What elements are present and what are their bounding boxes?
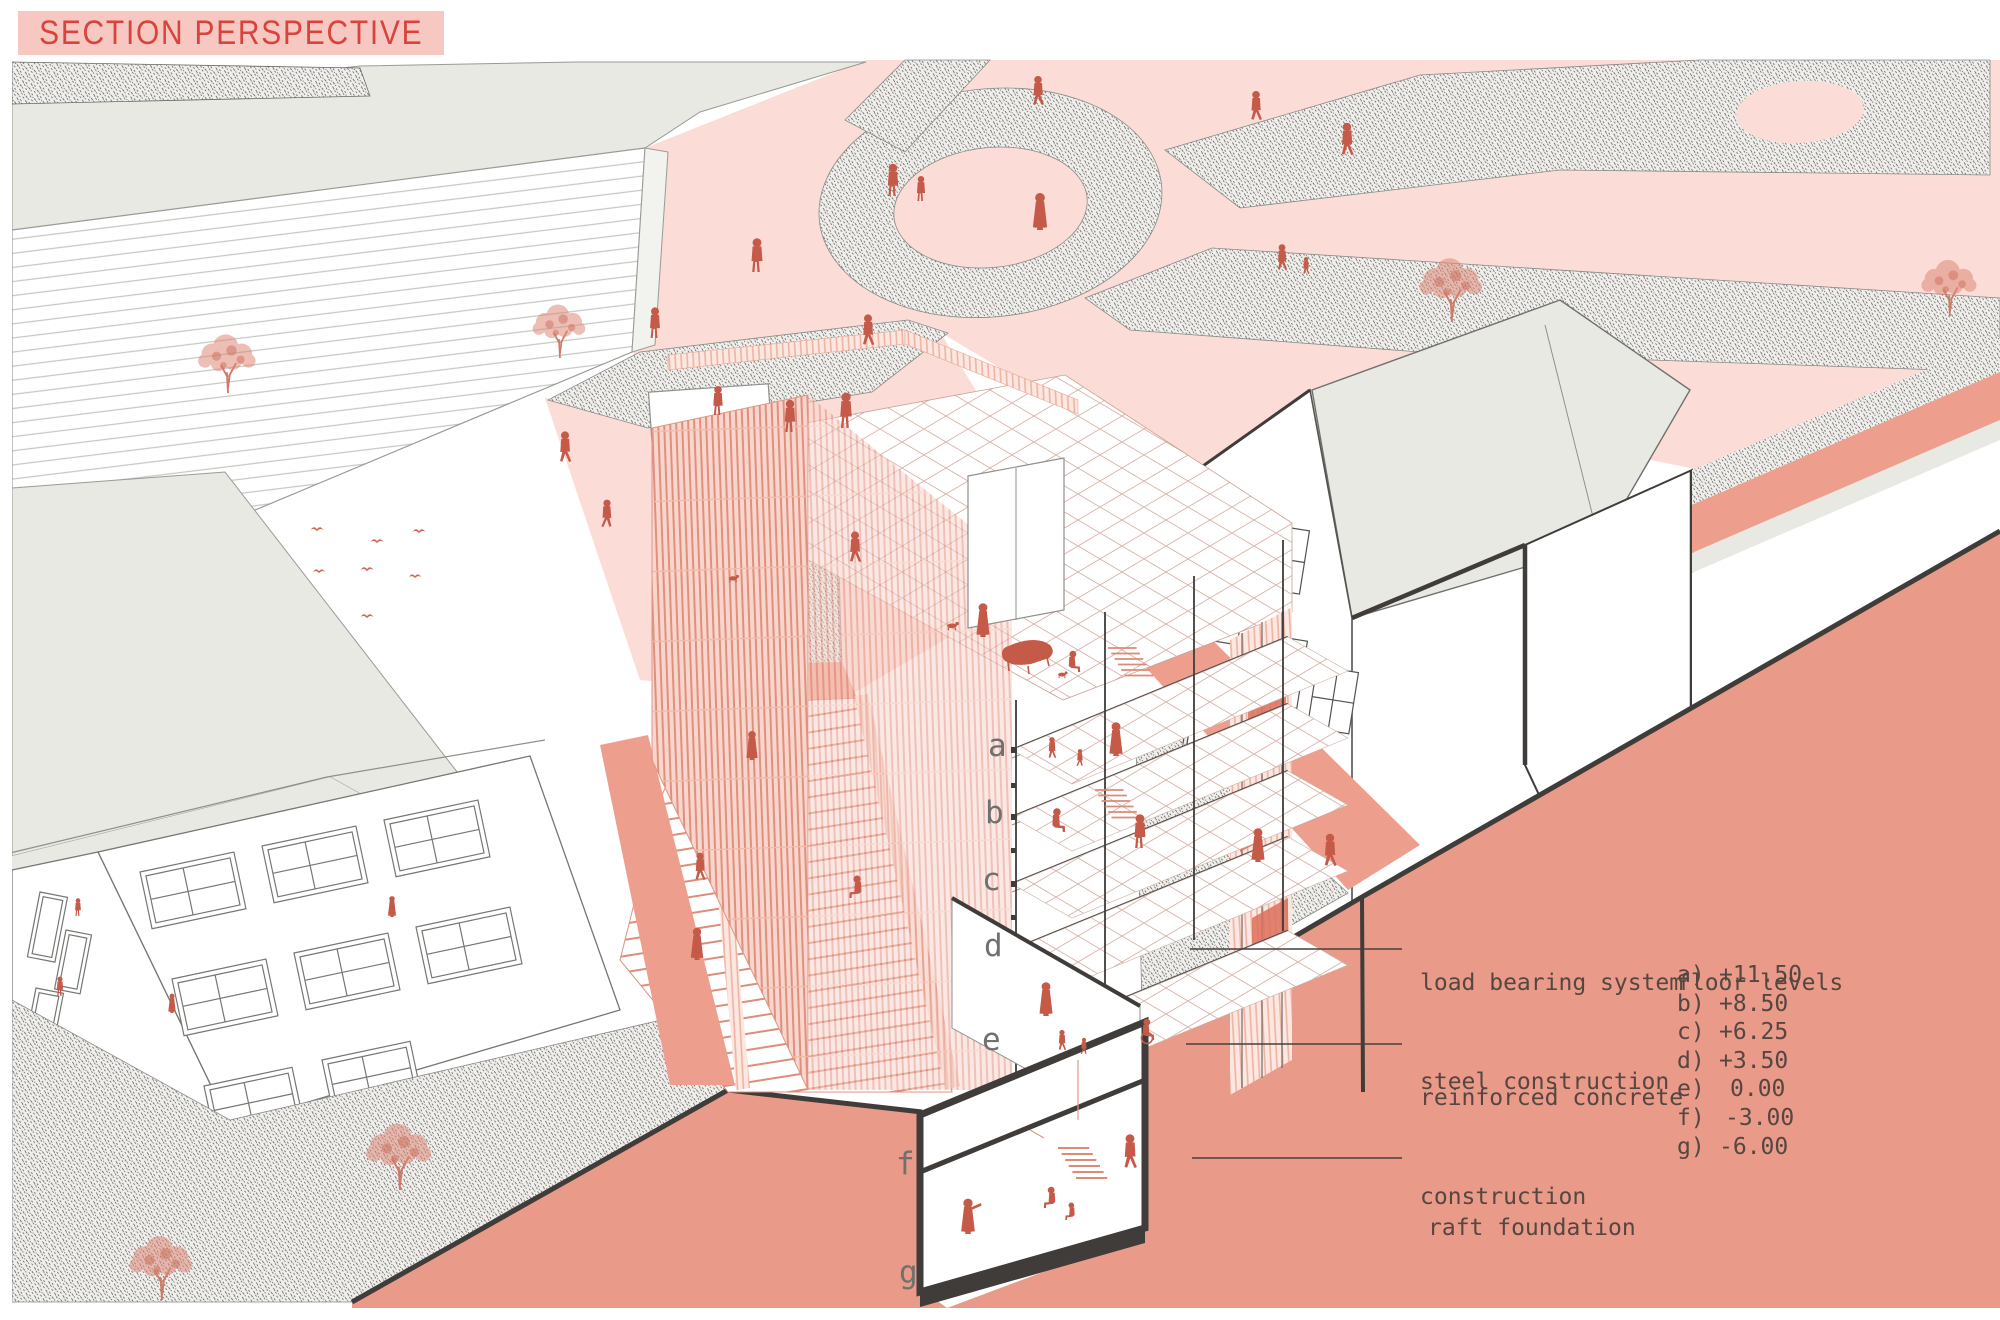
floor-level-row: g)-6.00	[1677, 1133, 1802, 1162]
label-raft: raft foundation	[1428, 1146, 1636, 1278]
section-letter-b: b	[985, 798, 1004, 829]
floor-level-row: b)+8.50	[1677, 990, 1802, 1019]
floor-level-row: f)-3.00	[1677, 1104, 1802, 1133]
section-letter-d: d	[984, 931, 1003, 962]
floor-level-row: c)+6.25	[1677, 1018, 1802, 1047]
floor-level-row: e)0.00	[1677, 1075, 1802, 1104]
floor-levels-list: a)+11.50 b)+8.50 c)+6.25 d)+3.50 e)0.00 …	[1677, 961, 1802, 1161]
section-letter-f: f	[896, 1149, 915, 1180]
left-building	[10, 472, 620, 1137]
title-badge: SECTION PERSPECTIVE	[18, 11, 444, 55]
section-letter-c: c	[982, 865, 1001, 896]
section-perspective-drawing: SECTION PERSPECTIVE load bearing system …	[0, 0, 2000, 1320]
section-letter-g: g	[899, 1258, 918, 1289]
page-title: SECTION PERSPECTIVE	[18, 11, 423, 55]
section-letter-e: e	[982, 1025, 1001, 1056]
section-letter-a: a	[988, 731, 1007, 762]
floor-level-row: a)+11.50	[1677, 961, 1802, 990]
floor-level-row: d)+3.50	[1677, 1047, 1802, 1076]
